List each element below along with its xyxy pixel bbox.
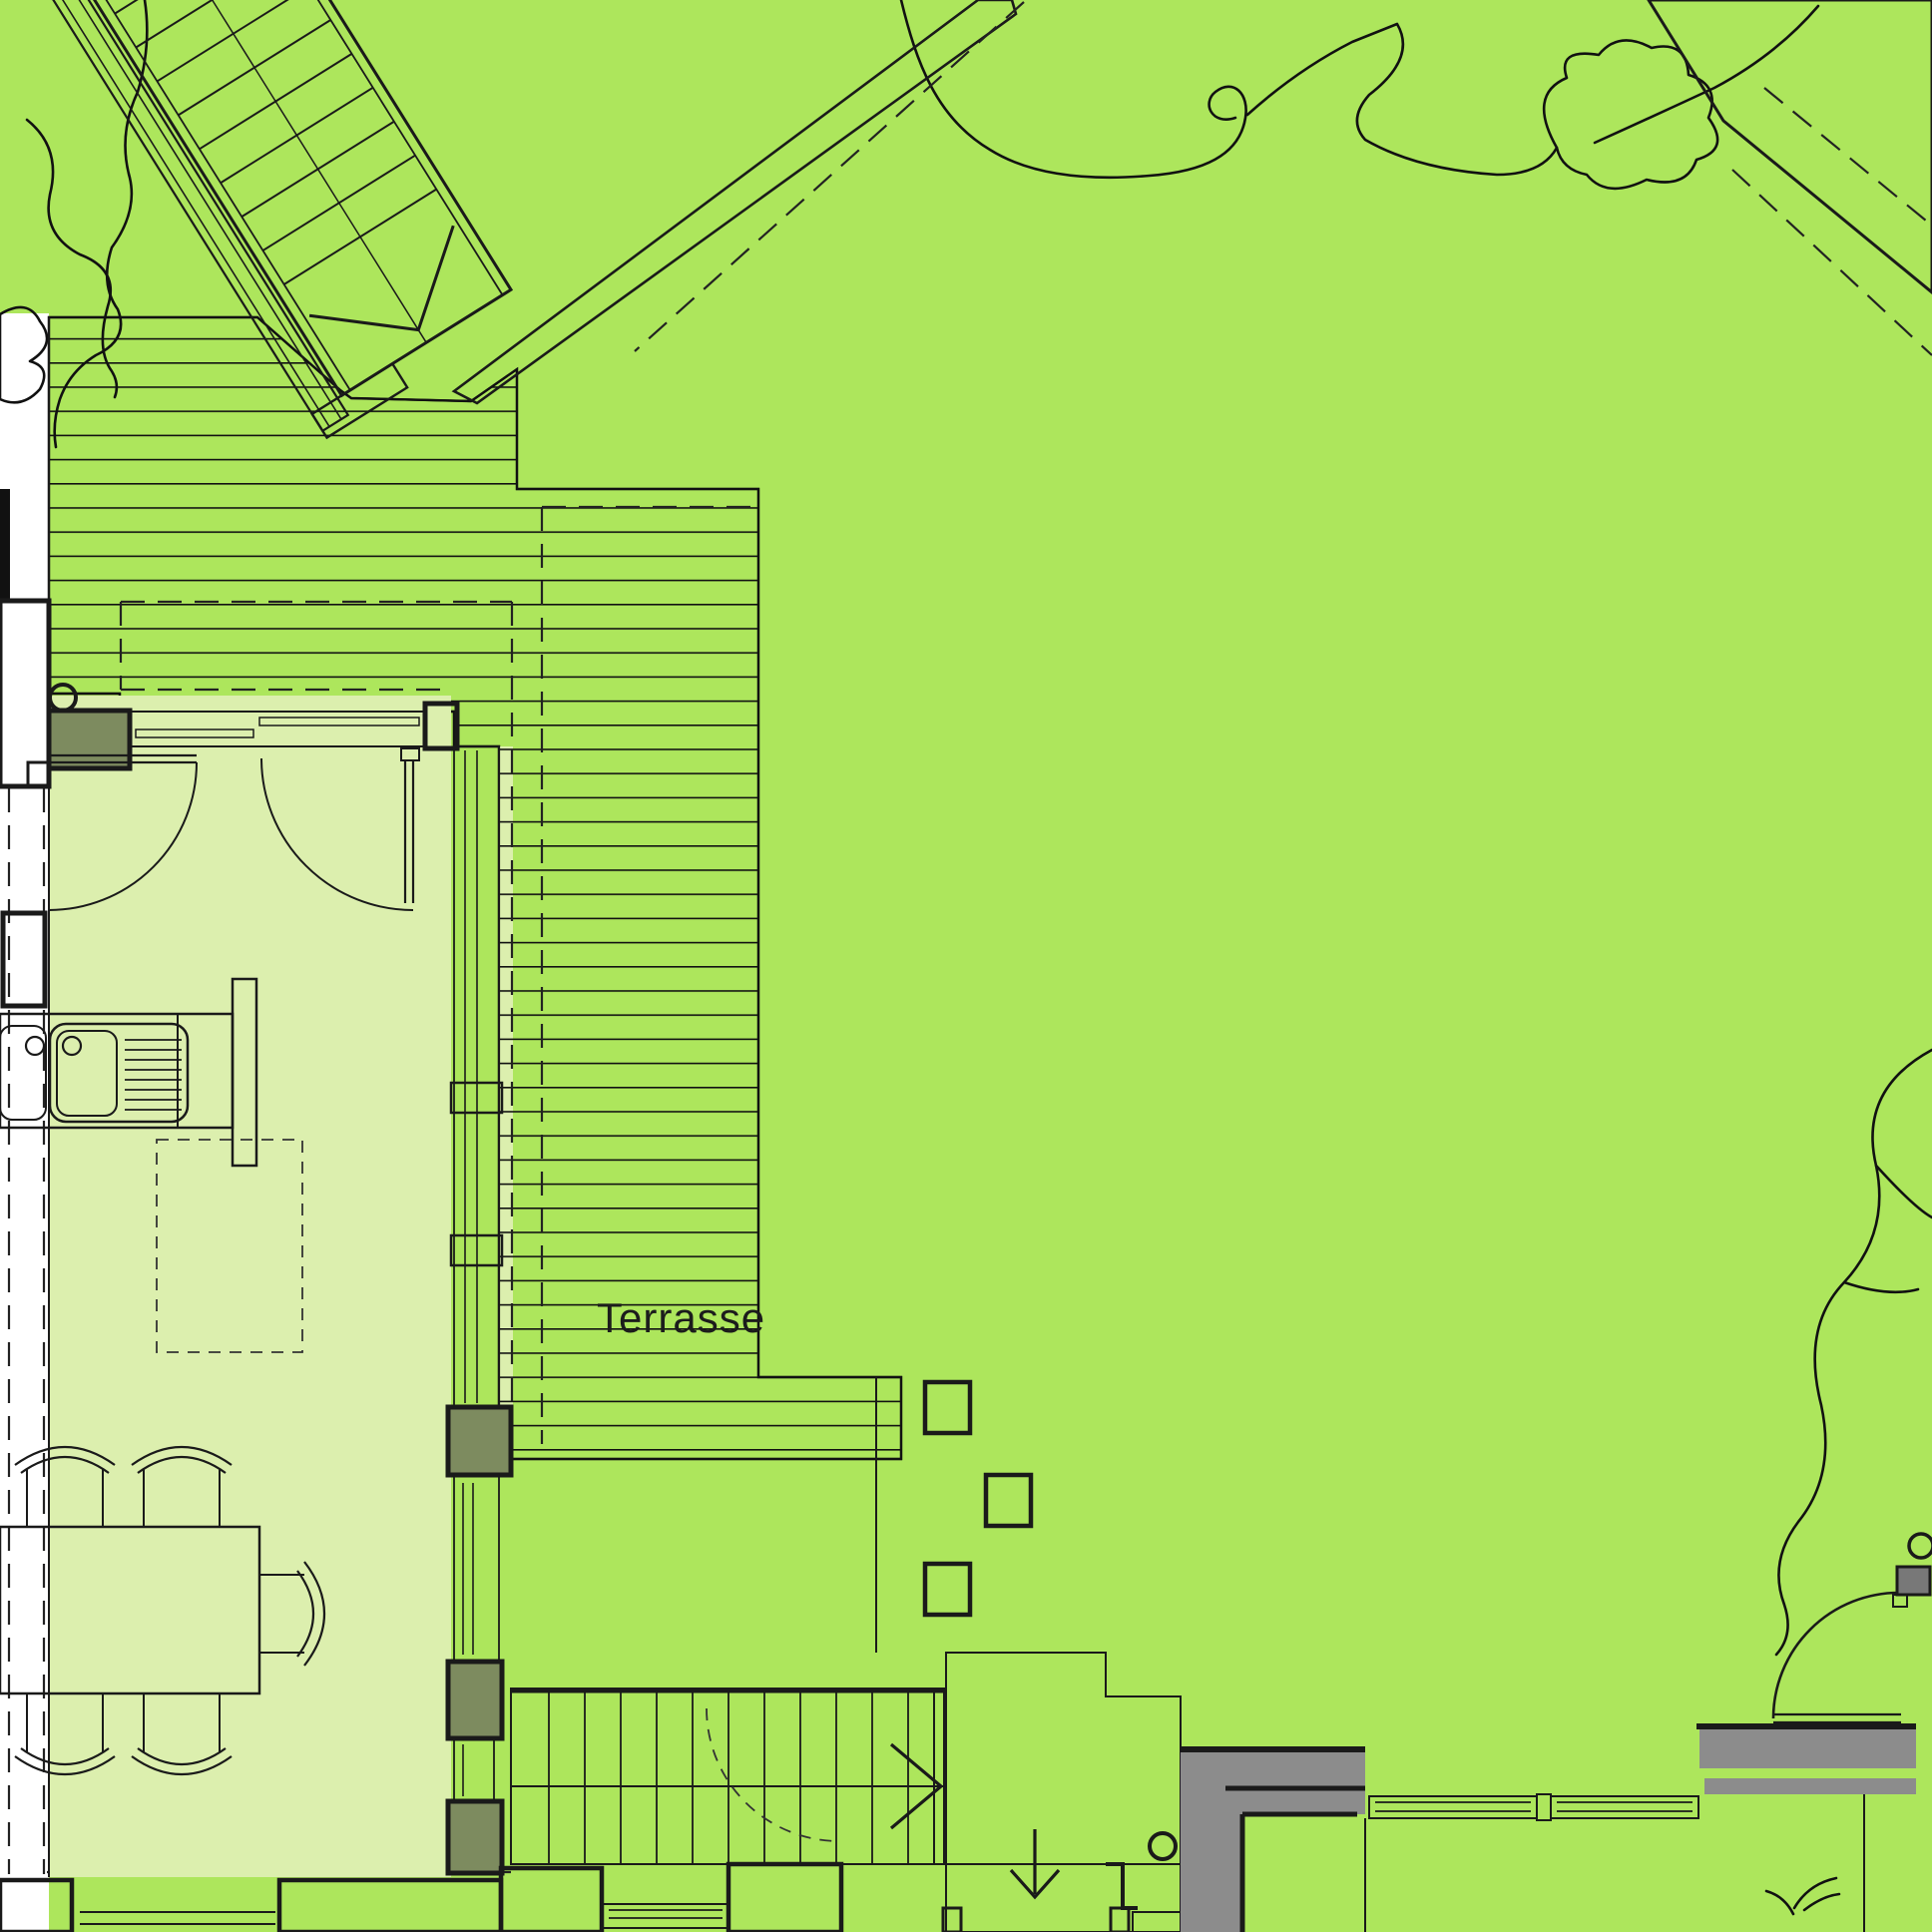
interior-room — [49, 696, 451, 1877]
floor-plan-canvas: Terrasse — [0, 0, 1932, 1932]
wall-segment-top-left — [0, 489, 10, 601]
terrace-label: Terrasse — [597, 1294, 765, 1341]
glazing-post — [448, 1662, 502, 1738]
glazing-post — [448, 1801, 502, 1873]
glazing-post-west — [49, 711, 130, 768]
door-leaf — [1897, 1567, 1930, 1595]
glazing-post — [448, 1407, 511, 1475]
